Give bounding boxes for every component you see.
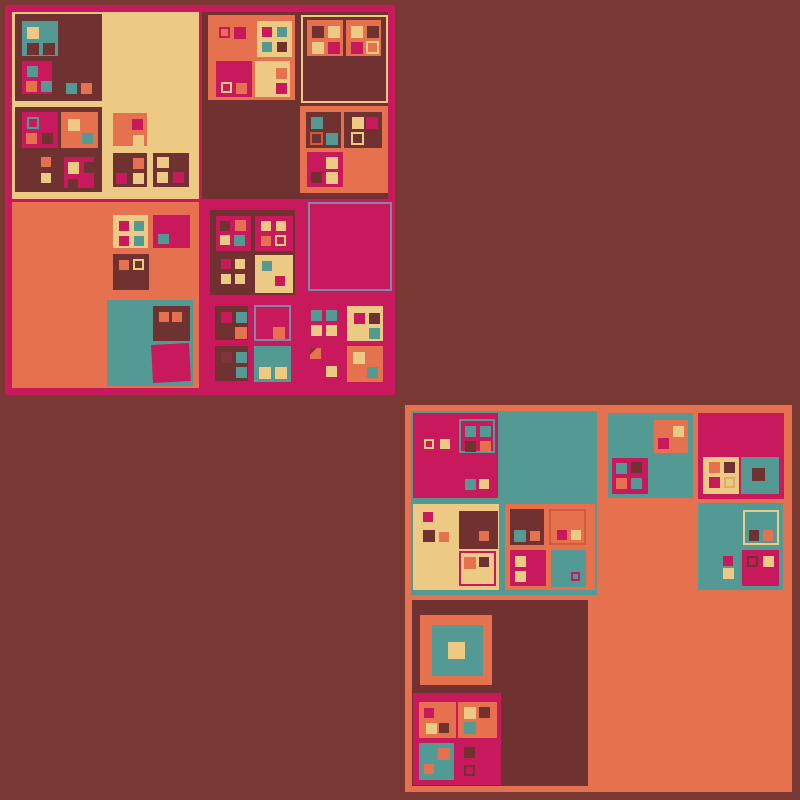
art-square (157, 157, 169, 168)
art-square (464, 722, 476, 734)
art-square (134, 236, 144, 246)
generative-art-canvas (0, 0, 800, 800)
art-square (530, 531, 540, 541)
art-square (119, 236, 129, 246)
art-square (275, 235, 286, 246)
art-square (514, 530, 526, 542)
art-square (41, 157, 51, 167)
art-square (41, 81, 52, 92)
art-square (275, 276, 285, 286)
art-square (158, 234, 169, 244)
art-square (464, 747, 475, 758)
art-square (571, 572, 580, 581)
art-square (84, 162, 95, 173)
art-square (236, 352, 247, 363)
art-square (439, 723, 449, 733)
art-square (353, 352, 365, 364)
art-square (479, 707, 490, 718)
art-square (236, 312, 247, 323)
art-square (326, 133, 338, 145)
art-square (26, 81, 37, 92)
art-square (220, 221, 230, 231)
art-square (275, 367, 287, 379)
art-square (424, 708, 434, 718)
art-square (723, 556, 733, 566)
art-square (424, 439, 434, 449)
art-square (261, 236, 271, 246)
art-square (81, 83, 92, 94)
art-square (277, 27, 287, 37)
art-square (235, 327, 247, 339)
art-square (673, 426, 684, 437)
art-square (423, 530, 435, 542)
art-square (479, 557, 489, 567)
art-square (439, 532, 449, 542)
art-square (351, 42, 363, 54)
art-square (27, 117, 39, 129)
art-square (133, 135, 144, 146)
art-square (116, 173, 127, 184)
art-square (724, 477, 735, 488)
art-square (133, 158, 144, 169)
art-square (366, 117, 378, 129)
art-square (82, 133, 93, 144)
art-square (464, 707, 476, 719)
art-square (354, 313, 365, 324)
art-square (119, 260, 129, 270)
art-square (709, 477, 720, 488)
art-square (367, 26, 379, 38)
art-square (68, 162, 79, 174)
art-square (326, 366, 337, 377)
art-square (328, 26, 340, 38)
art-square (42, 133, 53, 144)
art-square (438, 748, 450, 760)
art-square (311, 172, 322, 183)
art-square (480, 441, 491, 452)
art-square (66, 83, 77, 94)
art-square (133, 173, 144, 184)
art-square (328, 42, 340, 54)
art-square (68, 119, 80, 131)
art-square (27, 43, 39, 55)
art-square (749, 530, 759, 541)
art-square (658, 438, 669, 449)
art-square (26, 133, 37, 144)
art-square (763, 556, 774, 567)
art-square (221, 259, 231, 269)
art-square (261, 221, 271, 231)
art-square (41, 173, 51, 183)
art-square (515, 556, 526, 567)
art-square (221, 274, 231, 284)
art-square (312, 26, 324, 38)
art-square (221, 312, 232, 323)
art-square (326, 157, 338, 169)
art-square (236, 367, 247, 378)
art-square (132, 119, 143, 130)
art-square (479, 531, 489, 541)
art-square (448, 642, 465, 659)
art-square (276, 83, 287, 94)
art-square (157, 172, 168, 183)
art-square (352, 117, 364, 129)
art-square (616, 478, 627, 489)
art-square (134, 221, 144, 231)
art-square (724, 462, 735, 473)
art-square (426, 723, 437, 734)
art-square (68, 179, 78, 189)
art-square (326, 310, 337, 321)
outline-square (308, 202, 392, 291)
art-square (310, 132, 323, 145)
art-square (311, 117, 323, 129)
art-square (262, 261, 272, 271)
art-square (311, 325, 322, 336)
art-square (351, 132, 364, 145)
art-square (326, 325, 337, 336)
art-square (369, 313, 380, 324)
art-square (557, 530, 567, 540)
art-square (312, 42, 324, 54)
art-square (480, 426, 491, 437)
art-square (277, 42, 287, 52)
art-square (351, 26, 363, 38)
art-square (369, 328, 380, 339)
art-square (43, 43, 55, 55)
art-square (616, 463, 627, 474)
art-square (515, 571, 526, 582)
art-square (631, 478, 642, 489)
art-square (259, 367, 271, 379)
art-square (273, 327, 285, 339)
art-square (423, 512, 433, 522)
art-square (221, 82, 232, 93)
art-square (631, 462, 642, 473)
art-square (366, 41, 379, 54)
art-square (234, 27, 246, 39)
art-square (440, 439, 450, 449)
art-square (326, 172, 338, 184)
art-square (276, 221, 286, 231)
art-square (276, 68, 287, 79)
art-square (424, 764, 434, 774)
art-square (723, 568, 734, 579)
art-square (310, 348, 321, 359)
art-square (235, 274, 245, 284)
art-square (763, 530, 773, 541)
art-square (219, 27, 230, 38)
art-square (255, 255, 293, 293)
art-square (27, 66, 38, 77)
art-square (465, 426, 476, 437)
art-square (465, 441, 476, 452)
art-square (752, 468, 765, 481)
art-square (221, 352, 232, 363)
art-square (235, 259, 245, 269)
art-square (234, 235, 245, 246)
art-square (27, 27, 39, 39)
art-square (464, 765, 475, 776)
art-square (173, 172, 184, 183)
art-square (262, 27, 272, 37)
art-square (172, 312, 182, 322)
art-square (459, 511, 498, 549)
art-square (479, 479, 489, 489)
art-square (551, 550, 586, 587)
art-square (235, 220, 246, 231)
art-square (464, 557, 476, 569)
art-square (465, 479, 476, 490)
art-square (159, 312, 169, 322)
art-square (571, 530, 581, 540)
art-square (262, 42, 272, 52)
art-square (747, 556, 758, 567)
art-square (709, 462, 720, 473)
art-square (133, 259, 144, 270)
art-square (119, 221, 129, 231)
art-square (311, 310, 322, 321)
art-square (236, 83, 247, 94)
art-square (367, 367, 378, 378)
art-square (220, 235, 230, 245)
art-square (151, 343, 191, 383)
